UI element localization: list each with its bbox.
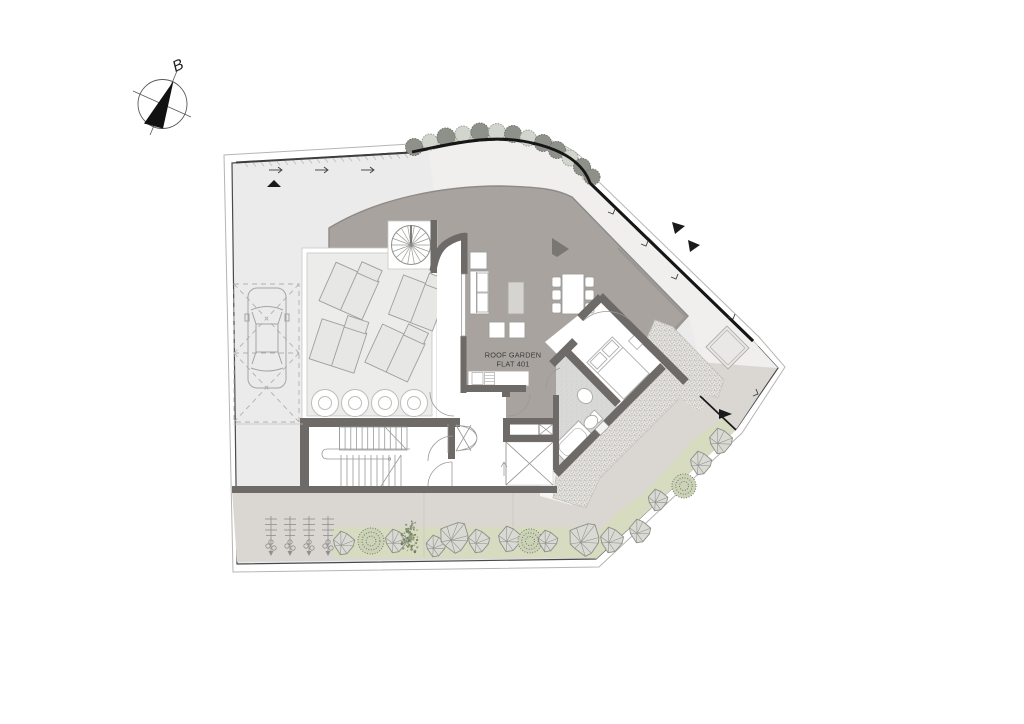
svg-text:ROOF GARDEN: ROOF GARDEN	[485, 351, 542, 360]
svg-text:B: B	[170, 56, 187, 76]
svg-text:FLAT 401: FLAT 401	[497, 360, 530, 369]
